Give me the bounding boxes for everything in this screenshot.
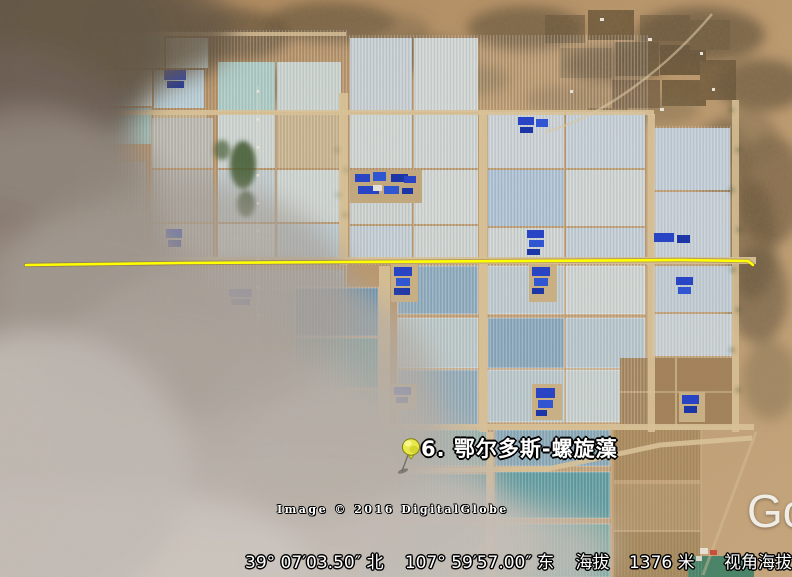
- placemark-label[interactable]: 6. 鄂尔多斯-螺旋藻: [421, 433, 618, 463]
- imagery-copyright: Image © 2016 DigitalGlobe: [277, 503, 509, 516]
- map-canvas[interactable]: [0, 0, 792, 577]
- atmosphere-grain: [0, 0, 792, 577]
- earth-viewport[interactable]: 6. 鄂尔多斯-螺旋藻 Image © 2016 DigitalGlobe Go…: [0, 0, 792, 577]
- status-bar: 39° 07′03.50″ 北 107° 59′57.00″ 东 海拔 1376…: [0, 551, 792, 577]
- status-longitude: 107° 59′57.00″ 东: [405, 551, 554, 575]
- status-view-altitude-label: 视角海拔高度: [724, 551, 792, 575]
- status-latitude: 39° 07′03.50″ 北: [245, 551, 383, 575]
- status-elevation-value: 1376 米: [629, 551, 695, 575]
- google-logo-watermark: Go: [747, 484, 792, 538]
- status-elevation-label: 海拔: [576, 551, 610, 575]
